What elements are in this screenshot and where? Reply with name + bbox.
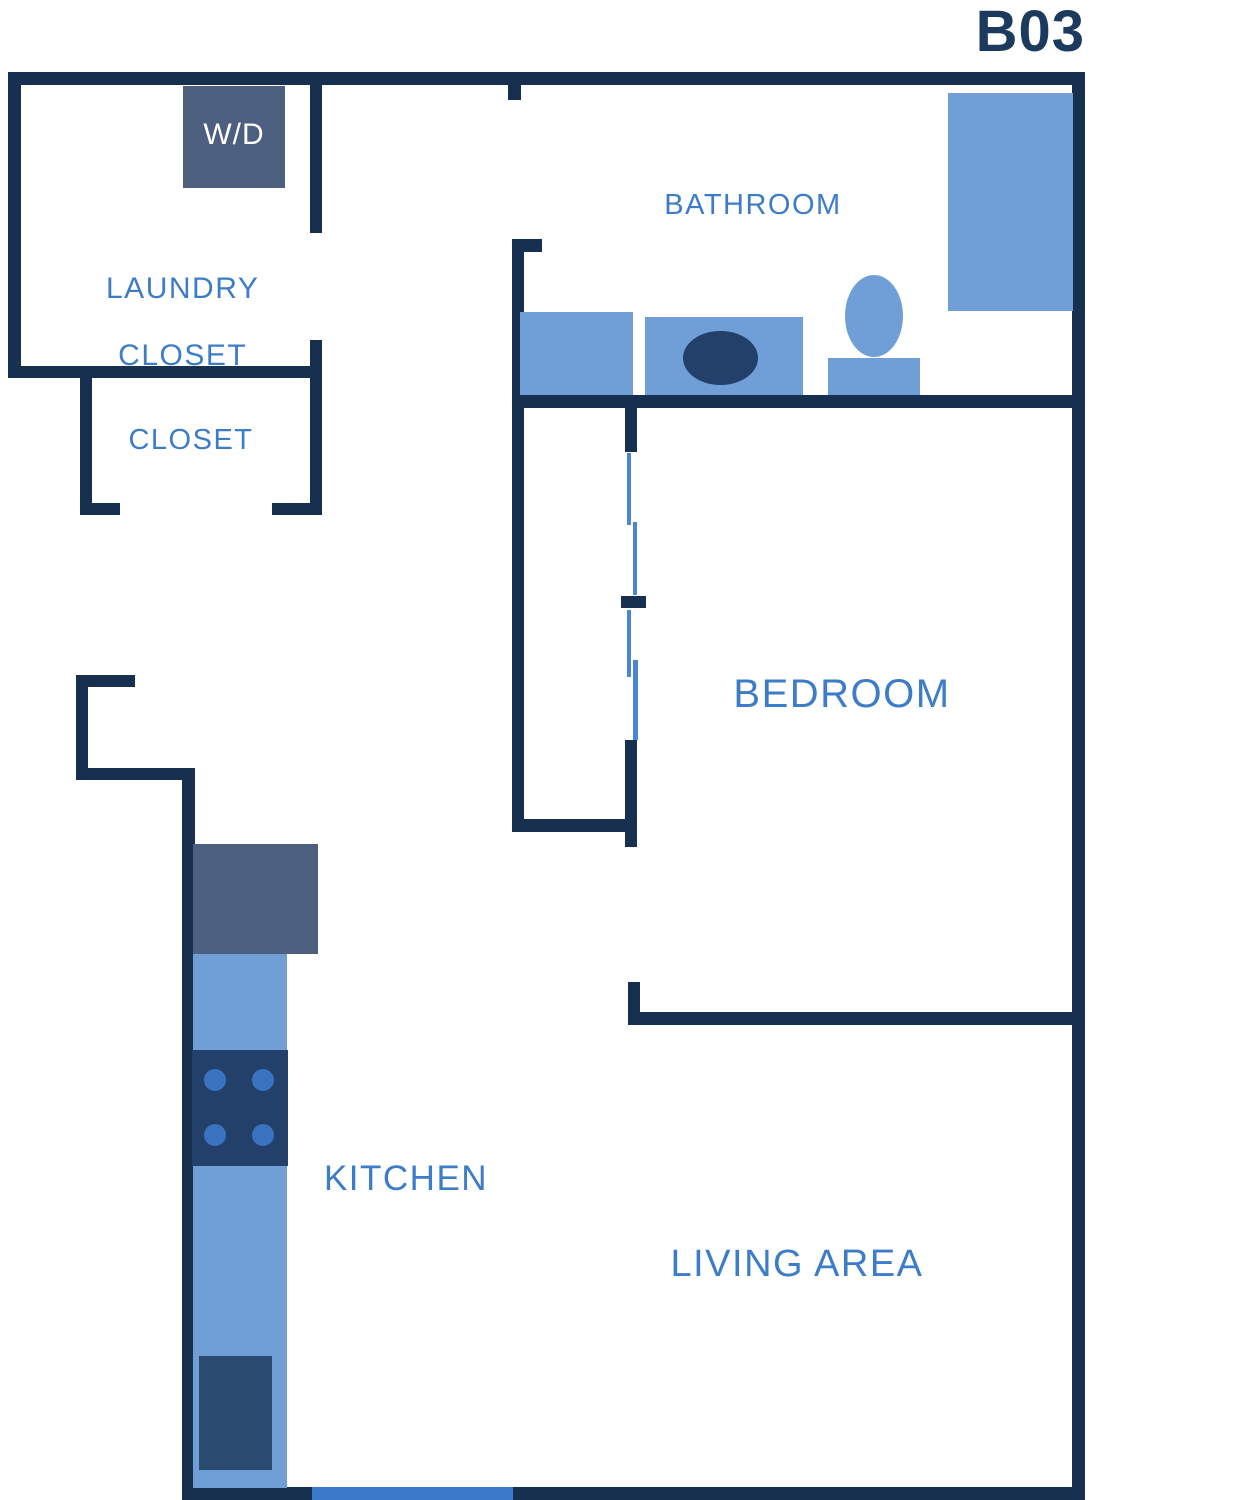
laundry-closet-label: LAUNDRY CLOSET [63, 238, 263, 406]
sliding-door-panel-2 [633, 522, 637, 595]
wall-left [8, 72, 21, 378]
wall-entry-vertical [76, 675, 88, 780]
laundry-closet-label-line1: LAUNDRY [106, 272, 259, 305]
floorplan-canvas: B03 W/D [0, 0, 1235, 1500]
bathroom-label: BATHROOM [603, 189, 903, 221]
stove [192, 1050, 288, 1166]
wall-bottom-right [513, 1487, 1085, 1500]
wall-laundry-right-lower [310, 340, 322, 515]
stove-burner-3 [204, 1124, 226, 1146]
washer-dryer-unit: W/D [183, 86, 285, 188]
wall-bedroom-bottom [628, 1012, 1085, 1025]
wall-bottom-left [182, 1487, 312, 1500]
shower [948, 93, 1073, 311]
washer-dryer-label: W/D [183, 118, 285, 152]
wall-bedroom-mid-bar [621, 596, 646, 608]
bedroom-label: BEDROOM [692, 672, 992, 717]
living-area-label: LIVING AREA [647, 1243, 947, 1286]
wall-bedroom-stub-top [625, 403, 637, 452]
wall-entry-bottom [76, 768, 195, 780]
toilet-bowl [845, 275, 903, 357]
wall-laundry-right-upper [310, 72, 322, 233]
wall-bedroom-stub-upper [625, 740, 637, 847]
laundry-closet-label-line2: CLOSET [118, 339, 247, 372]
kitchen-label: KITCHEN [306, 1159, 506, 1198]
closet-label: CLOSET [91, 424, 291, 456]
wall-right [1072, 72, 1085, 1500]
stove-burner-4 [252, 1124, 274, 1146]
stove-burner-2 [252, 1069, 274, 1091]
wall-closet-right-foot [272, 503, 322, 515]
refrigerator [193, 844, 318, 954]
kitchen-sink [199, 1356, 272, 1470]
toilet-tank [828, 358, 920, 395]
bathroom-sink-basin [683, 331, 758, 385]
wall-bathroom-inner-bottom [512, 819, 625, 832]
patio-door [312, 1487, 513, 1500]
wall-bathroom-door-jamb [508, 85, 521, 100]
plan-title: B03 [785, 0, 1085, 65]
wall-top [8, 72, 1085, 85]
sliding-door-panel-3 [627, 610, 631, 677]
vanity-counter [520, 312, 633, 395]
sliding-door-panel-4 [633, 660, 638, 740]
stove-burner-1 [204, 1069, 226, 1091]
wall-closet-left-foot [80, 503, 120, 515]
wall-entry-top-stub [76, 675, 135, 687]
sliding-door-panel-1 [627, 453, 631, 525]
wall-bathroom-bottom [512, 395, 1085, 408]
